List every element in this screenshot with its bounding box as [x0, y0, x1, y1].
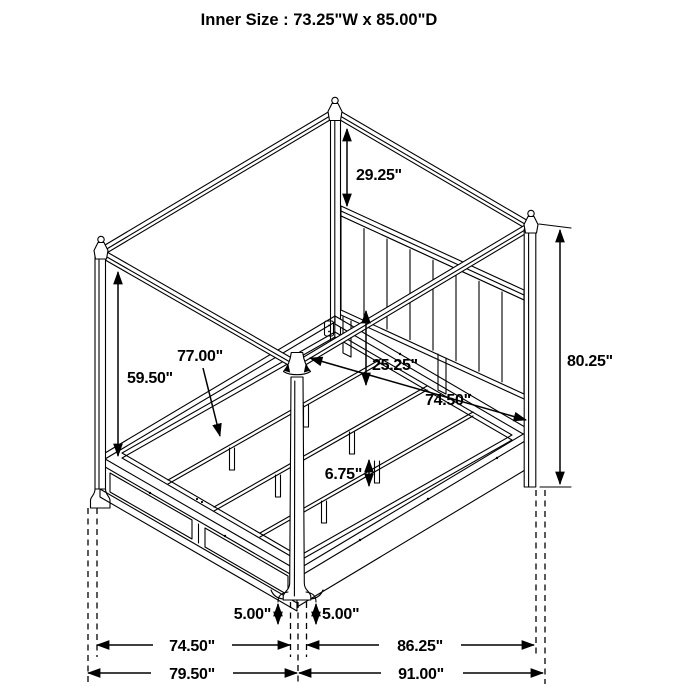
finial-right — [528, 210, 534, 216]
dim-support-leg-height-label: 6.75" — [325, 466, 362, 483]
dim-footboard-width-label: 74.50" — [169, 638, 215, 655]
dim-overall-depth-label: 91.00" — [398, 666, 444, 683]
dim-overall-height-label: 80.25" — [567, 353, 613, 370]
right-post — [524, 229, 536, 487]
dim-overall-height: 80.25" — [539, 224, 613, 487]
dim-slat-rail-length-label: 77.00" — [177, 348, 223, 365]
footboard-drawers — [100, 456, 297, 611]
support-legs — [230, 405, 380, 523]
front-post — [283, 353, 311, 601]
dim-canopy-post-upper-label: 29.25" — [356, 167, 402, 184]
dim-overall-width: 79.50" — [88, 666, 297, 683]
finial-back — [332, 97, 338, 103]
dim-headboard-clearance-label: 25.25" — [372, 357, 418, 374]
dim-post-base-left-label: 5.00" — [234, 606, 271, 623]
dim-post-base-right-label: 5.00" — [322, 606, 359, 623]
diagram-canvas: Inner Size : 73.25"W x 85.00"D — [0, 0, 700, 700]
dim-side-depth: 86.25" — [307, 638, 534, 655]
dim-side-depth-label: 86.25" — [397, 638, 443, 655]
dim-support-leg-height: 6.75" — [325, 460, 369, 486]
diagram-title: Inner Size : 73.25"W x 85.00"D — [201, 11, 438, 29]
finial-left — [98, 236, 104, 242]
dim-overall-depth: 91.00" — [299, 666, 543, 683]
side-rail — [297, 430, 530, 607]
bed-dimension-diagram: Inner Size : 73.25"W x 85.00"D — [0, 0, 700, 700]
dim-footboard-width: 74.50" — [97, 638, 290, 655]
dim-foot-post-height-label: 59.50" — [127, 370, 173, 387]
dim-side-rail-length-label: 74.50" — [425, 392, 471, 409]
back-post — [331, 115, 341, 345]
dim-overall-width-label: 79.50" — [169, 666, 215, 683]
